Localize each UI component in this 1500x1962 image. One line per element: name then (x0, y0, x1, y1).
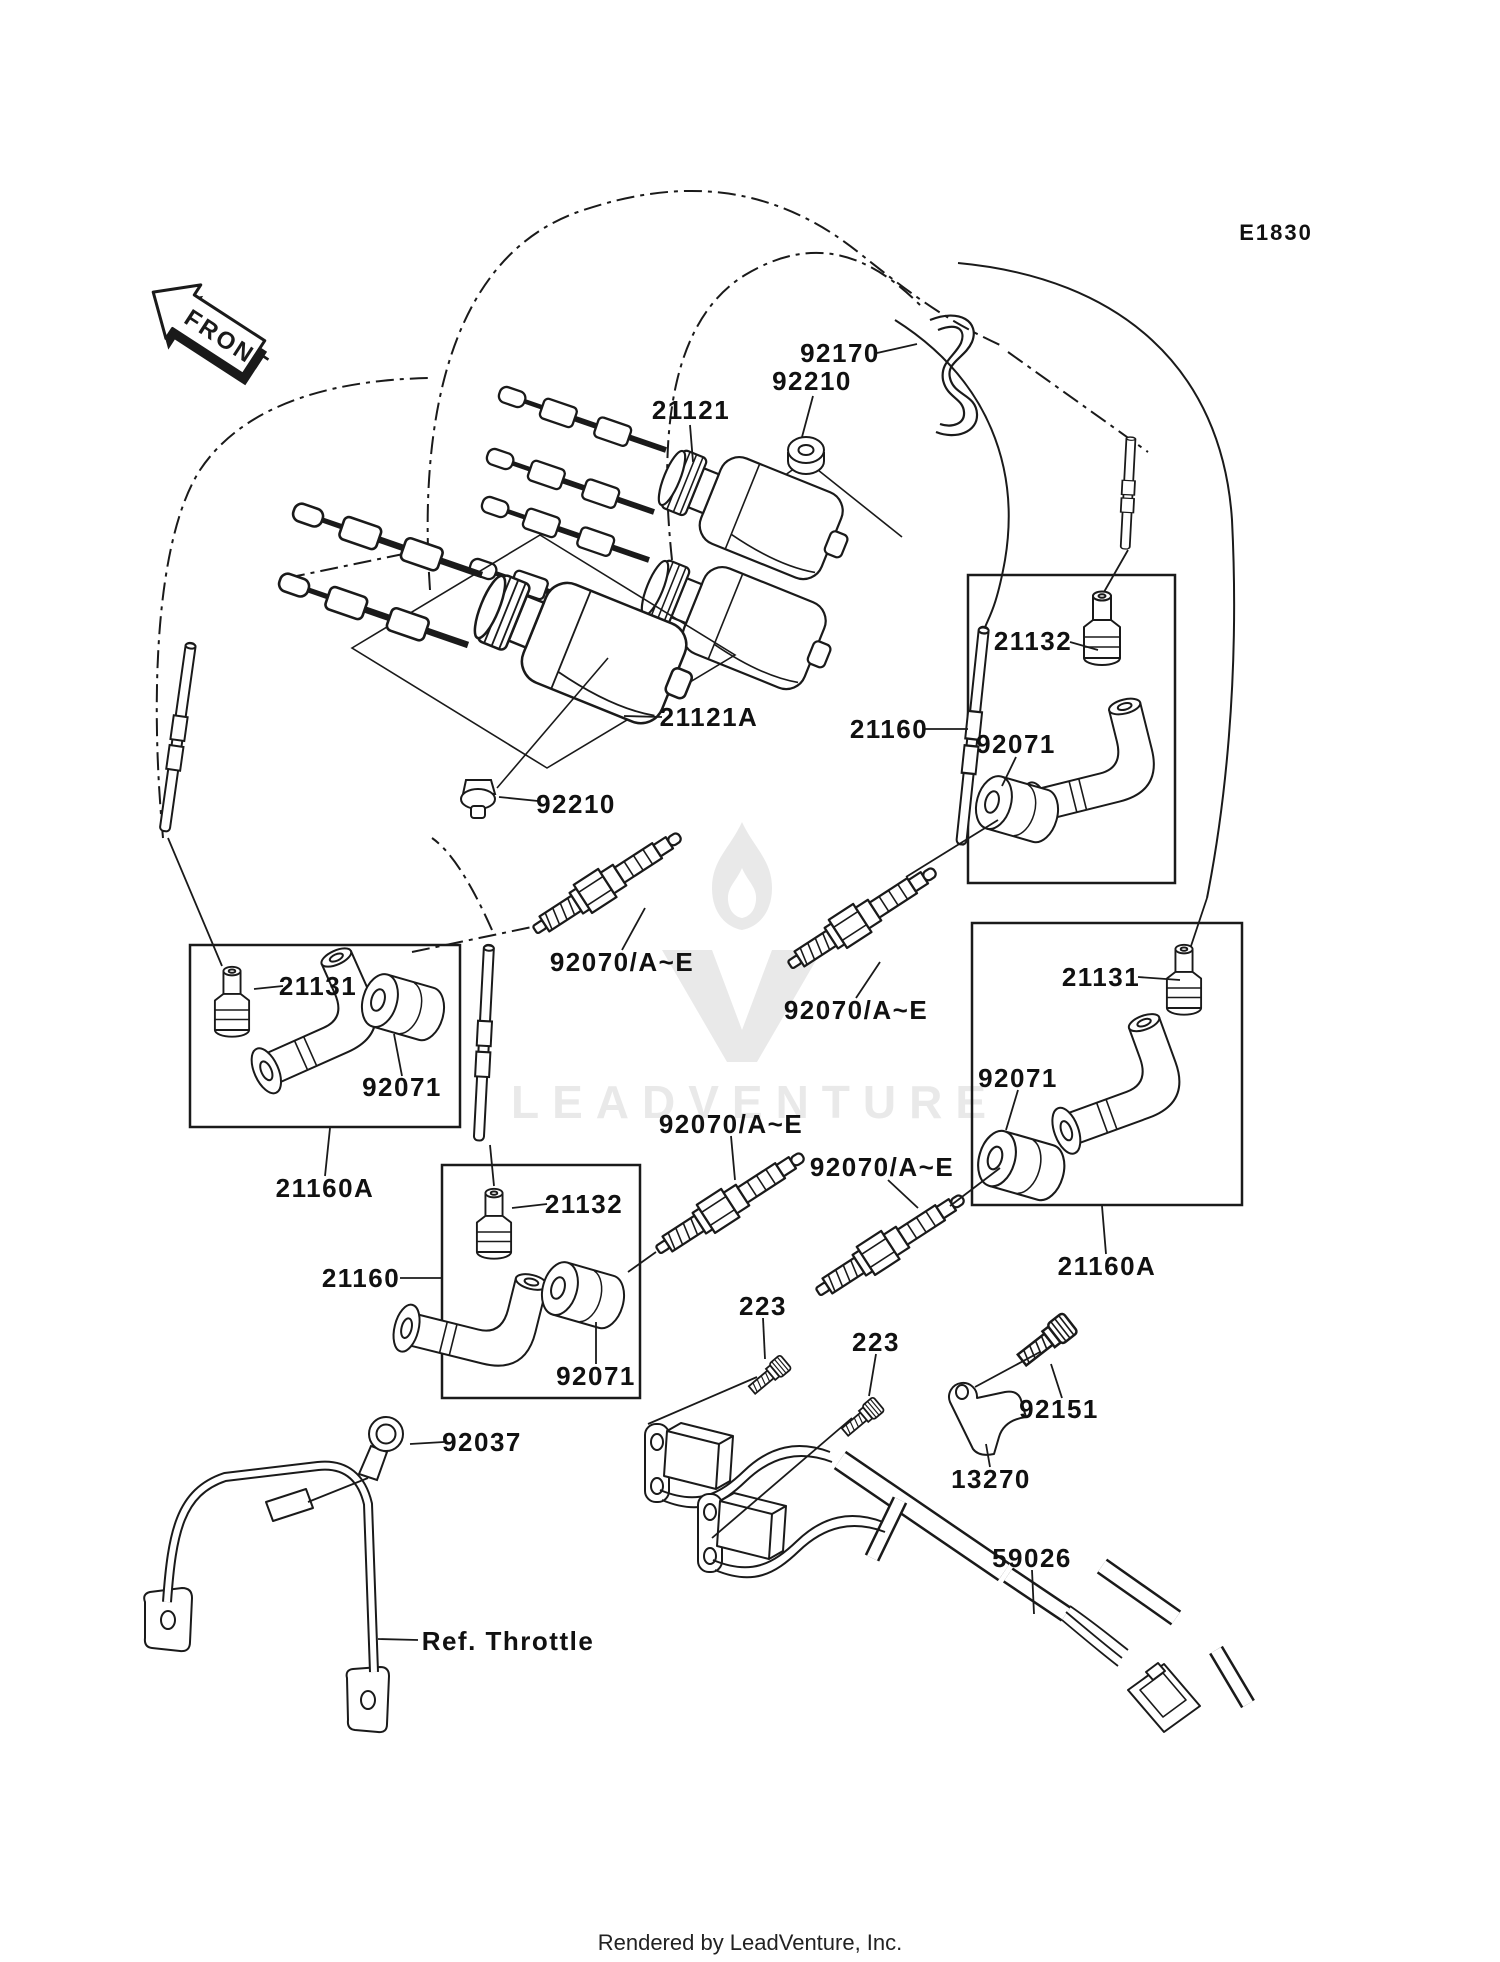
part-label-92170: 92170 (800, 340, 880, 366)
front-arrow-icon: FRONT (131, 265, 284, 400)
part-label-21131-left: 21131 (279, 973, 357, 999)
part-label-92071-left: 92071 (362, 1074, 442, 1100)
drawing-code: E1830 (1239, 222, 1313, 244)
part-label-92037: 92037 (442, 1429, 522, 1455)
part-label-92210-top: 92210 (772, 368, 852, 394)
part-label-92070-4: 92070/A~E (810, 1154, 954, 1180)
ignition-coil-21121a (276, 499, 735, 788)
part-label-92070-2: 92070/A~E (784, 997, 928, 1023)
parts-diagram-drawing: LEADVENTURE FRONT (0, 0, 1500, 1962)
part-label-21160-right: 21160 (850, 716, 928, 742)
spark-plug-3 (649, 1142, 812, 1264)
part-label-223-2: 223 (852, 1329, 900, 1355)
part-label-21131-right: 21131 (1062, 964, 1140, 990)
part-label-13270: 13270 (951, 1466, 1031, 1492)
part-label-92071-right-top: 92071 (976, 731, 1056, 757)
part-label-21132-mid: 21132 (545, 1191, 623, 1217)
grommet-92210 (788, 437, 824, 474)
screw-223-2 (839, 1397, 884, 1439)
footer-credit: Rendered by LeadVenture, Inc. (598, 1930, 903, 1956)
part-label-21132-right: 21132 (994, 628, 1072, 654)
clip-92170 (930, 316, 977, 436)
part-label-92071-right-bottom: 92071 (978, 1065, 1058, 1091)
part-label-21160-mid: 21160 (322, 1265, 400, 1291)
part-label-59026: 59026 (992, 1545, 1072, 1571)
part-label-92070-3: 92070/A~E (659, 1111, 803, 1137)
bracket-13270 (949, 1383, 1026, 1455)
part-label-92151: 92151 (1019, 1396, 1099, 1422)
part-label-ref-throttle: Ref. Throttle (422, 1628, 595, 1654)
part-label-21160a-left: 21160A (276, 1175, 375, 1201)
throttle-bracket (144, 1466, 389, 1732)
spark-plug-1 (526, 822, 689, 944)
spark-plug-4 (809, 1184, 972, 1306)
wire-terminal-left (158, 642, 198, 832)
screw-223-1 (746, 1355, 791, 1397)
parts-diagram-page: LEADVENTURE FRONT (0, 0, 1500, 1962)
wire-terminal-mid (472, 945, 496, 1141)
phantom-frame-lines (157, 191, 1148, 952)
part-label-92071-mid: 92071 (556, 1363, 636, 1389)
part-label-21121: 21121 (652, 397, 730, 423)
part-label-21121a: 21121A (660, 704, 759, 730)
spark-plug-2 (781, 857, 944, 979)
bolt-92210 (461, 780, 495, 818)
part-label-92210-lower: 92210 (536, 791, 616, 817)
part-label-223-1: 223 (739, 1293, 787, 1319)
clamp-92037 (359, 1417, 403, 1480)
wire-terminal-right-top (1119, 437, 1137, 550)
part-label-92070-1: 92070/A~E (550, 949, 694, 975)
part-label-21160a-right: 21160A (1058, 1253, 1157, 1279)
coil-harness-assembly (645, 1423, 1248, 1732)
